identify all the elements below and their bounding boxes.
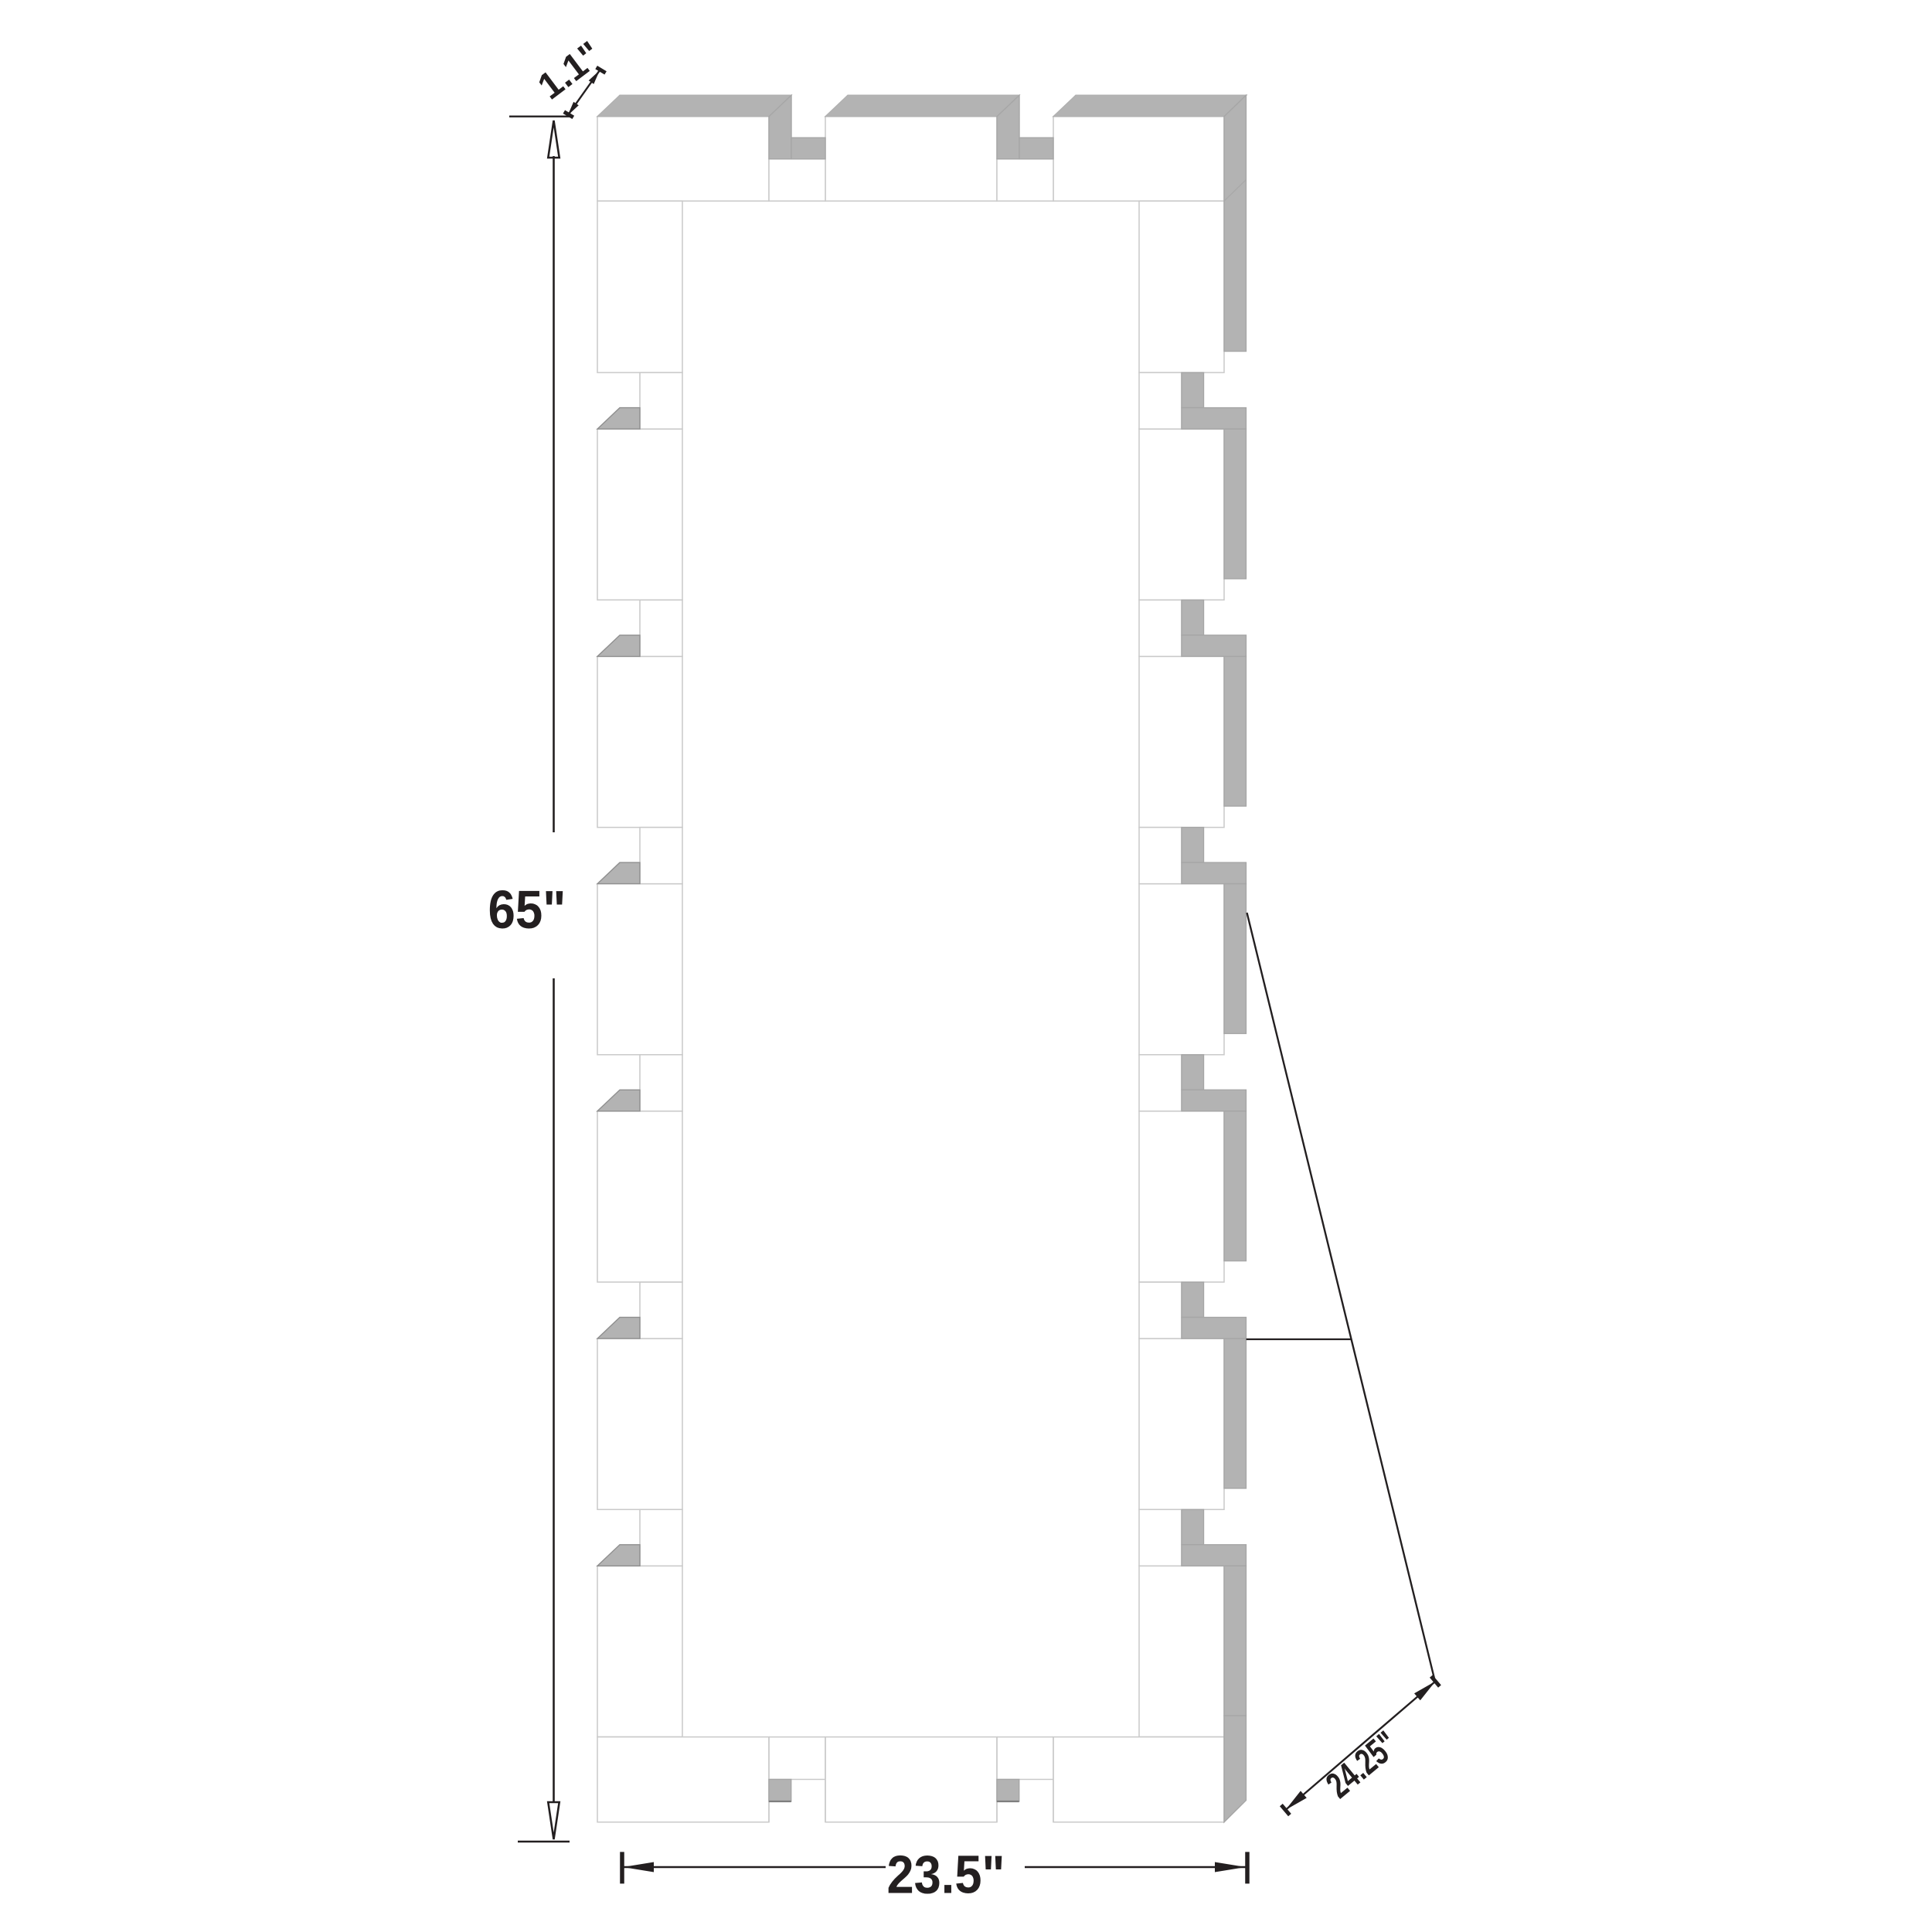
svg-text:23.5": 23.5"	[887, 1845, 1005, 1905]
svg-text:65": 65"	[488, 879, 566, 940]
